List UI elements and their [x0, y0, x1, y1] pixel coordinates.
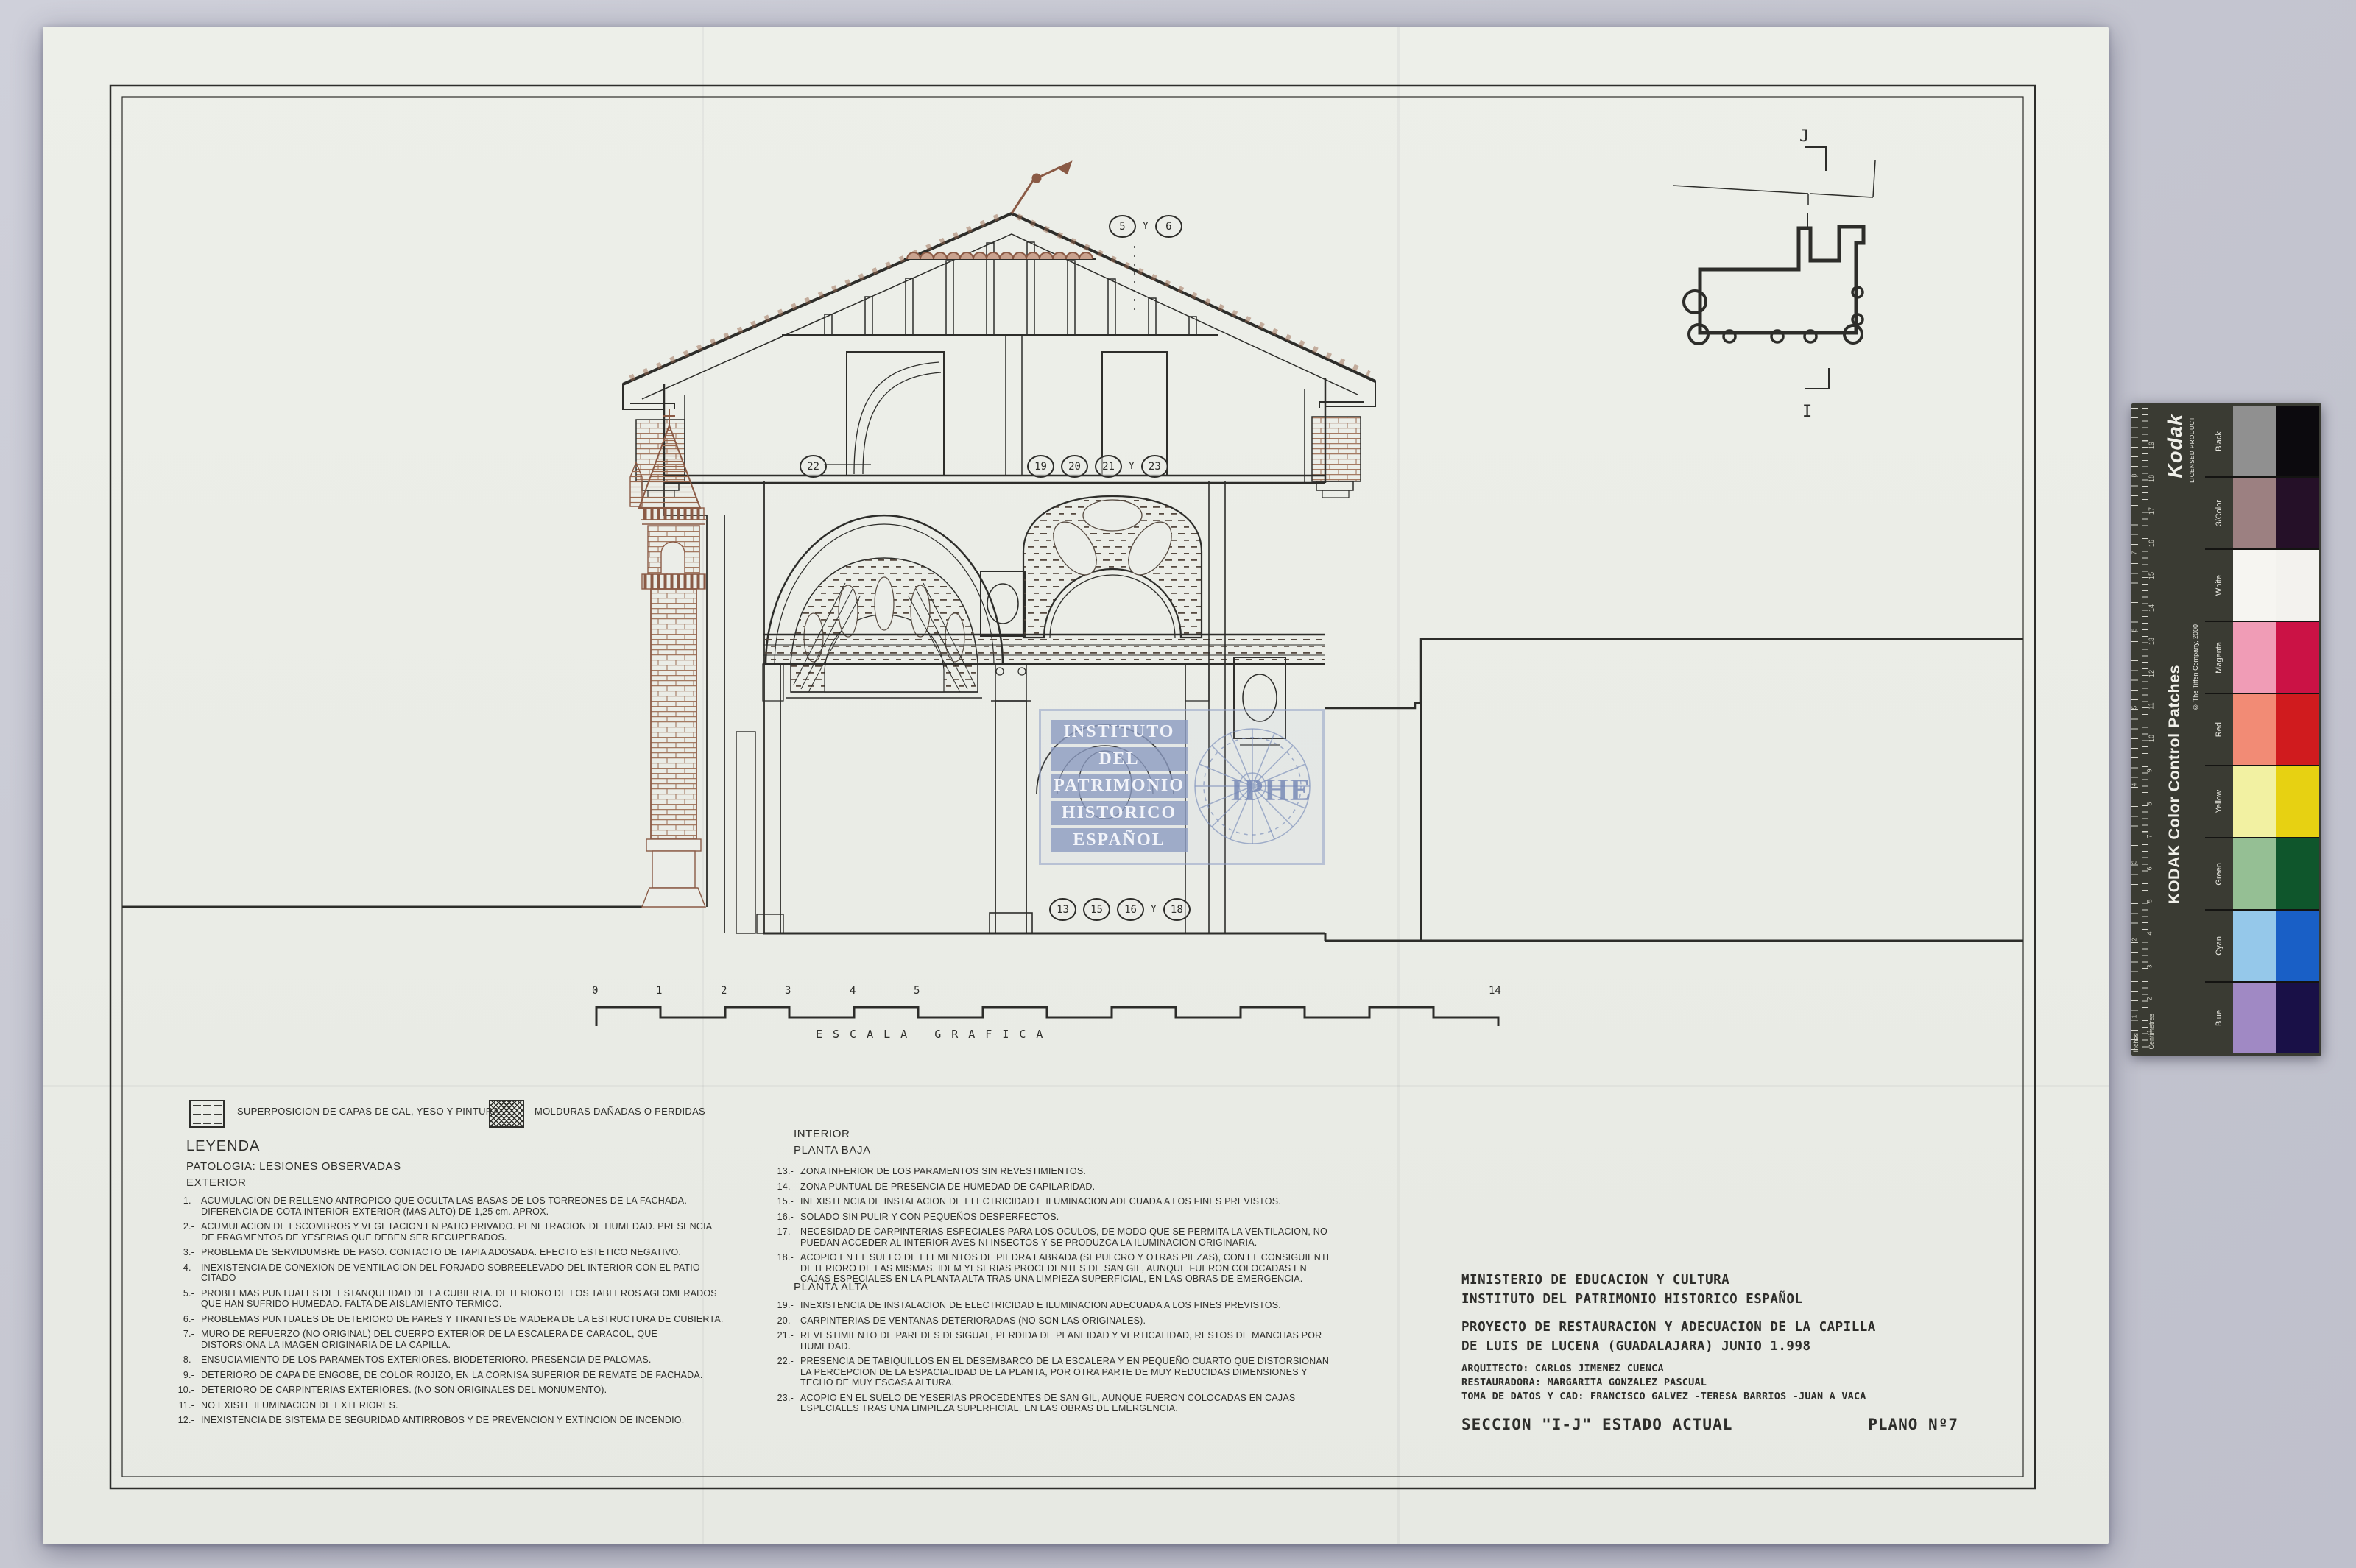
- circled-number: 19: [1027, 455, 1054, 478]
- marker-j-label: J: [1799, 127, 1809, 146]
- kodak-ruler: Centimetres Inches 123456789101112131415…: [2131, 403, 2159, 1056]
- legend-item: 13.-ZONA INFERIOR DE LOS PARAMENTOS SIN …: [767, 1166, 1336, 1177]
- kodak-licensed: LICENSED PRODUCT: [2189, 417, 2195, 483]
- legend-item: 3.-PROBLEMA DE SERVIDUMBRE DE PASO. CONT…: [168, 1247, 724, 1258]
- circled-number: 13: [1049, 898, 1076, 921]
- legend-item: 18.-ACOPIO EN EL SUELO DE ELEMENTOS DE P…: [767, 1252, 1336, 1285]
- window-arch-line: [854, 362, 941, 474]
- legend-item: 20.-CARPINTERIAS DE VENTANAS DETERIORADA…: [767, 1316, 1336, 1327]
- kodak-patch-rows: Black 3/Color White Magenta Red Yellow G…: [2205, 406, 2319, 1053]
- annotation-upper-left: 22: [800, 455, 827, 478]
- section-marker-j-line: [1805, 147, 1826, 171]
- circled-number: 15: [1083, 898, 1110, 921]
- legend-item: 12.-INEXISTENCIA DE SISTEMA DE SEGURIDAD…: [168, 1415, 724, 1426]
- section-cut-line: [1673, 160, 1875, 205]
- legend-item: 17.-NECESIDAD DE CARPINTERIAS ESPECIALES…: [767, 1226, 1336, 1248]
- brick-turret: [630, 409, 707, 907]
- legend-item: 5.-PROBLEMAS PUNTUALES DE ESTANQUEIDAD D…: [168, 1288, 724, 1310]
- scale-tick-label: 14: [1489, 985, 1501, 997]
- patch-dark: [2276, 622, 2320, 693]
- inches-label: Inches: [2132, 1033, 2140, 1053]
- legend-item: 19.-INEXISTENCIA DE INSTALACION DE ELECT…: [767, 1300, 1336, 1311]
- patch-light: [2233, 622, 2276, 693]
- legend-planta-alta-header: PLANTA ALTA: [794, 1281, 869, 1293]
- inch-ticks: [2131, 408, 2138, 1051]
- watermark-line: HISTORICO: [1051, 801, 1188, 825]
- patch-light: [2233, 911, 2276, 981]
- patch-dark: [2276, 550, 2320, 621]
- circled-number: 23: [1141, 455, 1168, 478]
- floor-line: [763, 933, 2023, 941]
- marker-i-label: I: [1802, 403, 1812, 421]
- kodak-row: Cyan: [2205, 911, 2319, 981]
- legend-swatch-molduras: [489, 1100, 524, 1128]
- kodak-copyright: © The Tiffen Company, 2000: [2192, 624, 2199, 711]
- legend-title: LEYENDA: [186, 1138, 260, 1155]
- watermark-line: ESPAÑOL: [1051, 828, 1188, 852]
- architect-line: ARQUITECTO: CARLOS JIMENEZ CUENCA: [1461, 1362, 1958, 1376]
- patch-light: [2233, 694, 2276, 765]
- patch-dark: [2276, 478, 2320, 548]
- patch-dark: [2276, 838, 2320, 909]
- legend-subtitle: PATOLOGIA: LESIONES OBSERVADAS: [186, 1160, 401, 1173]
- kodak-row: 3/Color: [2205, 478, 2319, 548]
- legend-item: 1.-ACUMULACION DE RELLENO ANTROPICO QUE …: [168, 1196, 724, 1217]
- patch-light: [2233, 406, 2276, 476]
- circled-number: 20: [1061, 455, 1088, 478]
- patch-light: [2233, 838, 2276, 909]
- patch-dark: [2276, 406, 2320, 476]
- circled-number: 6: [1155, 215, 1182, 238]
- watermark-line: INSTITUTO: [1051, 720, 1188, 744]
- roof: [623, 213, 1375, 409]
- scale-tick-label: 3: [785, 985, 791, 997]
- legend-item: 8.-ENSUCIAMIENTO DE LOS PARAMENTOS EXTER…: [168, 1355, 724, 1366]
- scanned-drawing-board: J I 5 Y 6 22 19 20 21 Y 23 13 15 16 Y 18…: [0, 0, 2356, 1568]
- legend-item: 2.-ACUMULACION DE ESCOMBROS Y VEGETACION…: [168, 1221, 724, 1243]
- iphe-watermark: INSTITUTO DEL PATRIMONIO HISTORICO ESPAÑ…: [1039, 709, 1325, 865]
- legend-item: 7.-MURO DE REFUERZO (NO ORIGINAL) DEL CU…: [168, 1329, 724, 1350]
- lower-vault-left: [766, 515, 1003, 698]
- kodak-row: Blue: [2205, 983, 2319, 1053]
- legend-interior-header: INTERIOR: [794, 1128, 850, 1140]
- cad-line: TOMA DE DATOS Y CAD: FRANCISCO GALVEZ -T…: [1461, 1390, 1958, 1404]
- project-line-1: PROYECTO DE RESTAURACION Y ADECUACION DE…: [1461, 1318, 1958, 1337]
- watermark-line: PATRIMONIO: [1051, 774, 1188, 799]
- legend-item: 15.-INEXISTENCIA DE INSTALACION DE ELECT…: [767, 1196, 1336, 1207]
- scale-tick-label: 4: [850, 985, 856, 997]
- section-title: SECCION "I-J" ESTADO ACTUAL: [1461, 1416, 1732, 1433]
- legend-item: 9.-DETERIORO DE CAPA DE ENGOBE, DE COLOR…: [168, 1370, 724, 1381]
- kodak-text-column: Kodak LICENSED PRODUCT © The Tiffen Comp…: [2159, 403, 2205, 1056]
- institute-line: INSTITUTO DEL PATRIMONIO HISTORICO ESPAÑ…: [1461, 1290, 1958, 1309]
- legend-item: 23.-ACOPIO EN EL SUELO DE YESERIAS PROCE…: [767, 1393, 1336, 1414]
- legend-planta-baja-header: PLANTA BAJA: [794, 1144, 871, 1156]
- kodak-color-strip: Centimetres Inches 123456789101112131415…: [2131, 403, 2321, 1056]
- roof-finial: [1012, 163, 1071, 213]
- legend-item: 10.-DETERIORO DE CARPINTERIAS EXTERIORES…: [168, 1385, 724, 1396]
- scale-bar: [596, 1007, 1498, 1026]
- patch-dark: [2276, 694, 2320, 765]
- patch-light: [2233, 550, 2276, 621]
- kodak-brand: Kodak: [2164, 414, 2187, 478]
- patch-dark: [2276, 911, 2320, 981]
- circled-number: 16: [1117, 898, 1144, 921]
- annotation-roof: 5 Y 6: [1109, 215, 1182, 238]
- kodak-row: White: [2205, 550, 2319, 621]
- scale-tick-label: 0: [592, 985, 598, 997]
- ridge-crest-tiles: [907, 252, 1093, 259]
- legend-swatch-cal: [189, 1100, 225, 1128]
- restorer-line: RESTAURADORA: MARGARITA GONZALEZ PASCUAL: [1461, 1376, 1958, 1390]
- site-plan: J I: [1673, 127, 1875, 421]
- cornice-corbels: [636, 417, 1361, 498]
- kodak-row: Magenta: [2205, 622, 2319, 693]
- legend-planta-alta-list: 19.-INEXISTENCIA DE INSTALACION DE ELECT…: [767, 1300, 1336, 1419]
- title-block: MINISTERIO DE EDUCACION Y CULTURA INSTIT…: [1461, 1271, 1958, 1433]
- adjacent-building-outline: [1325, 639, 2023, 941]
- circled-number: 22: [800, 455, 827, 478]
- patch-dark: [2276, 766, 2320, 837]
- kodak-row: Green: [2205, 838, 2319, 909]
- kodak-row: Black: [2205, 406, 2319, 476]
- patch-light: [2233, 766, 2276, 837]
- legend-item: 16.-SOLADO SIN PULIR Y CON PEQUEÑOS DESP…: [767, 1212, 1336, 1223]
- patch-light: [2233, 478, 2276, 548]
- circled-number: 5: [1109, 215, 1136, 238]
- scale-caption: ESCALA GRAFICA: [816, 1028, 1053, 1041]
- oculus-box: [981, 571, 1025, 636]
- scale-tick-label: 1: [656, 985, 662, 997]
- scale-tick-label: 5: [914, 985, 920, 997]
- legend-swatch-label: SUPERPOSICION DE CAPAS DE CAL, YESO Y PI…: [237, 1106, 499, 1117]
- legend-exterior-header: EXTERIOR: [186, 1176, 246, 1189]
- project-line-2: DE LUIS DE LUCENA (GUADALAJARA) JUNIO 1.…: [1461, 1337, 1958, 1356]
- legend-item: 4.-INEXISTENCIA DE CONEXION DE VENTILACI…: [168, 1262, 724, 1284]
- watermark-acronym: IPHE: [1230, 773, 1312, 808]
- kodak-title: KODAK Color Control Patches: [2165, 665, 2184, 904]
- section-marker-i-line: [1805, 368, 1829, 389]
- annotation-upper-right: 19 20 21 Y 23: [1027, 455, 1168, 478]
- annotation-lower: 13 15 16 Y 18: [1049, 898, 1191, 921]
- watermark-line: DEL: [1051, 747, 1188, 771]
- circled-number: 18: [1163, 898, 1191, 921]
- patch-dark: [2276, 983, 2320, 1053]
- legend-item: 21.-REVESTIMIENTO DE PAREDES DESIGUAL, P…: [767, 1330, 1336, 1352]
- lower-dome-right: [1023, 496, 1202, 638]
- patch-light: [2233, 983, 2276, 1053]
- legend-item: 6.-PROBLEMAS PUNTUALES DE DETERIORO DE P…: [168, 1314, 724, 1325]
- scale-tick-label: 2: [721, 985, 727, 997]
- legend-item: 22.-PRESENCIA DE TABIQUILLOS EN EL DESEM…: [767, 1356, 1336, 1388]
- legend-item: 14.-ZONA PUNTUAL DE PRESENCIA DE HUMEDAD…: [767, 1182, 1336, 1193]
- legend-planta-baja-list: 13.-ZONA INFERIOR DE LOS PARAMENTOS SIN …: [767, 1166, 1336, 1289]
- plan-number: PLANO Nº7: [1868, 1416, 1958, 1433]
- legend-exterior-list: 1.-ACUMULACION DE RELLENO ANTROPICO QUE …: [168, 1196, 724, 1430]
- legend-swatch-label: MOLDURAS DAÑADAS O PERDIDAS: [535, 1106, 705, 1117]
- circled-number: 21: [1095, 455, 1122, 478]
- cm-ticks: [2142, 408, 2148, 1051]
- kodak-row: Yellow: [2205, 766, 2319, 837]
- legend-item: 11.-NO EXISTE ILUMINACION DE EXTERIORES.: [168, 1400, 724, 1411]
- ministry-line: MINISTERIO DE EDUCACION Y CULTURA: [1461, 1271, 1958, 1290]
- kodak-row: Red: [2205, 694, 2319, 765]
- upper-storey: [664, 335, 1325, 483]
